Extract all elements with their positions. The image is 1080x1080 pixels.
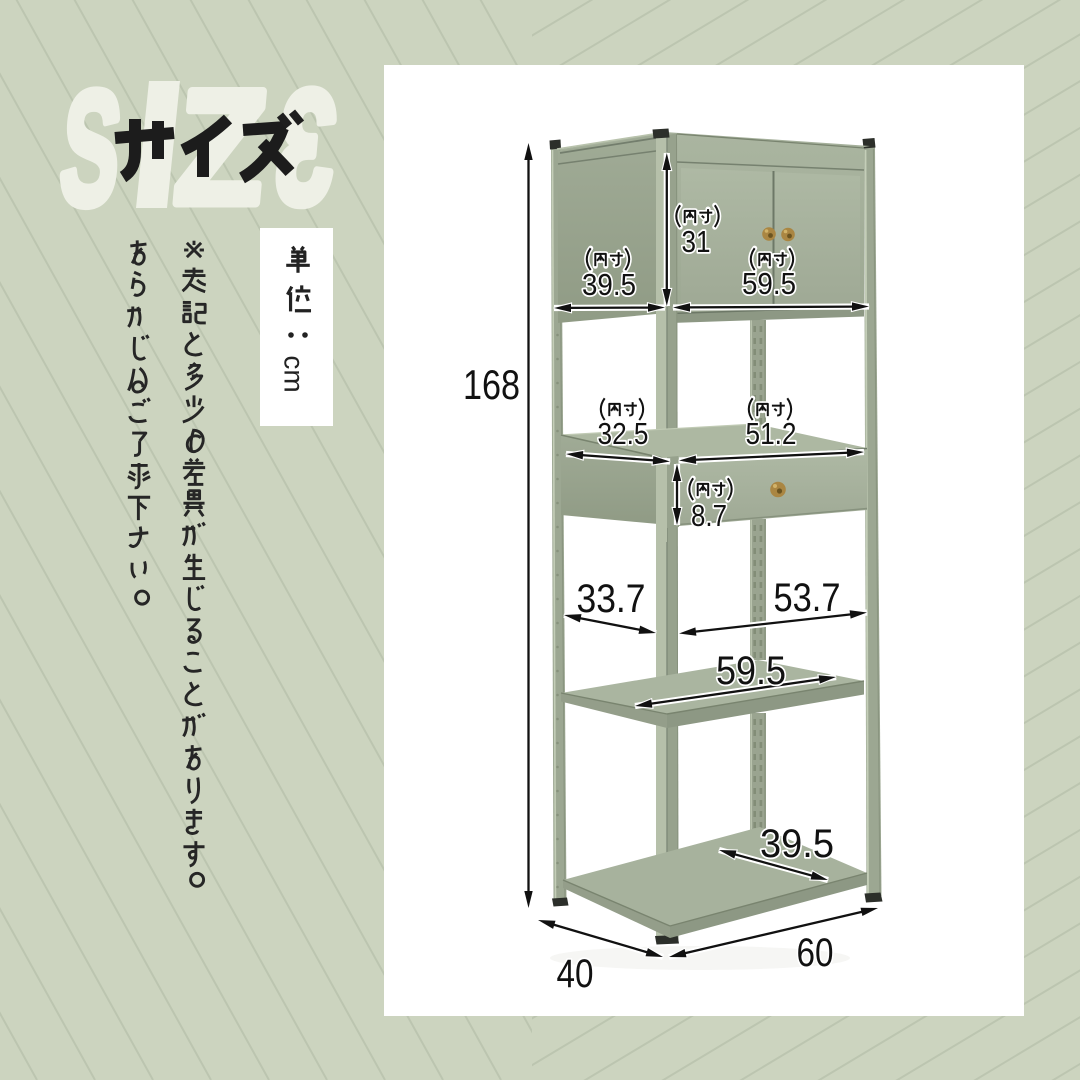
svg-text:59.5: 59.5 <box>742 266 796 301</box>
svg-text:168: 168 <box>463 361 520 408</box>
svg-text:8.7: 8.7 <box>691 498 727 533</box>
svg-text:40: 40 <box>557 952 594 996</box>
svg-text:60: 60 <box>797 931 834 975</box>
svg-text:53.7: 53.7 <box>774 576 841 620</box>
svg-text:39.5: 39.5 <box>760 822 834 866</box>
svg-text:33.7: 33.7 <box>577 577 646 621</box>
svg-text:32.5: 32.5 <box>598 416 649 451</box>
svg-text:31: 31 <box>682 224 711 259</box>
svg-text:59.5: 59.5 <box>716 649 786 693</box>
svg-text:51.2: 51.2 <box>746 416 797 451</box>
svg-text:39.5: 39.5 <box>582 267 636 302</box>
svg-text:cm: cm <box>279 355 310 392</box>
